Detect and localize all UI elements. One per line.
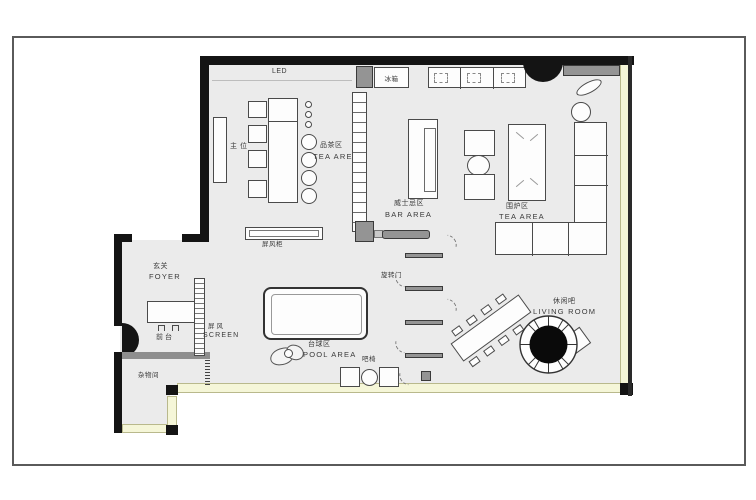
- dining-chair: [248, 101, 267, 118]
- tea-table-head: [268, 98, 298, 122]
- tea2-square-table: [464, 174, 495, 200]
- reception-chair: [172, 325, 179, 331]
- reception-label: 前台: [156, 334, 174, 343]
- tea2-label-en: TEA AREA: [499, 212, 545, 221]
- wall-left-upper: [200, 56, 209, 238]
- hatch-mark: [516, 180, 524, 187]
- sink-symbol: [501, 73, 515, 83]
- bar-counter: [408, 119, 438, 199]
- sofa-seam: [532, 223, 533, 256]
- dining-chair: [248, 150, 267, 168]
- counter-gray-strip: [563, 65, 620, 76]
- sculpture-decor-circle: [284, 349, 293, 358]
- revolving-door-panel: [405, 286, 443, 291]
- light-band-bottom: [177, 383, 621, 393]
- sink-symbol: [467, 73, 481, 83]
- hatch-mark: [516, 132, 524, 139]
- stool: [301, 134, 317, 150]
- bar-label-zh: 威士忌区: [394, 200, 424, 209]
- bar-counter-low: [382, 230, 430, 239]
- appliance-block: [356, 66, 373, 88]
- storage-label: 杂物间: [138, 372, 159, 380]
- bar-seat-square: [379, 367, 399, 387]
- bar-label-en: BAR AREA: [385, 210, 432, 219]
- bar-seat-round: [361, 369, 378, 386]
- storage-floor: [120, 355, 170, 428]
- screen-cabinet: [245, 227, 323, 240]
- small-stool: [305, 111, 312, 118]
- wall-foyer-stub-right: [182, 234, 209, 242]
- tea1-label-zh: 品茶区: [320, 142, 343, 151]
- counter-divider: [460, 68, 461, 89]
- host-bench: [213, 117, 227, 183]
- led-strip-line: [212, 80, 352, 81]
- bar-block: [355, 221, 374, 242]
- corner-block-left-bottom: [166, 425, 178, 435]
- dining-chair: [248, 125, 267, 143]
- foyer-label-zh: 玄关: [153, 263, 168, 272]
- sofa-seam: [575, 185, 608, 186]
- wine-rack: [352, 92, 367, 232]
- screen-cabinet-label: 屏风柜: [262, 241, 283, 249]
- sofa-seam: [575, 155, 608, 156]
- counter-divider: [493, 68, 494, 89]
- led-label: LED: [272, 68, 287, 77]
- dining-chair: [248, 180, 267, 198]
- sink-symbol: [434, 73, 448, 83]
- wall-top: [200, 56, 634, 65]
- tea2-round-table: [467, 155, 490, 176]
- pool-table-felt: [271, 294, 362, 335]
- living-label-zh: 休闲吧: [553, 298, 576, 307]
- revolving-door-panel: [405, 353, 443, 358]
- tea-table-long: [268, 121, 298, 203]
- sofa-seam: [568, 223, 569, 256]
- fridge: 冰箱: [374, 67, 409, 88]
- screen-label-en: SCREEN: [203, 332, 239, 339]
- tea2-square-table: [464, 130, 495, 156]
- main-seat-label: 主位: [230, 143, 250, 152]
- small-stool: [305, 101, 312, 108]
- bar-seat-square: [340, 367, 360, 387]
- light-band-storage: [122, 424, 167, 433]
- floor-plan-canvas: LED 冰箱 主位 品茶区 TEA AREA 威士忌区 BAR AREA: [0, 0, 756, 500]
- wall-foyer-left: [114, 234, 122, 326]
- reception-chair: [158, 325, 165, 331]
- light-band-left-vertical: [167, 396, 177, 426]
- pool-label-en: POOL AREA: [303, 350, 356, 359]
- wall-right: [628, 56, 632, 396]
- sofa-horizontal: [495, 222, 607, 255]
- side-table-round: [571, 102, 591, 122]
- hatch-mark: [530, 178, 538, 185]
- door-pivot-block: [421, 371, 431, 381]
- kitchen-counter: [428, 67, 526, 88]
- revolving-door-label: 旋转门: [381, 272, 402, 280]
- reception-desk: [147, 301, 197, 323]
- tea2-label-zh: 围炉区: [506, 203, 529, 212]
- stool: [301, 188, 317, 204]
- screen-cabinet-inner: [249, 230, 319, 237]
- hatch-mark: [530, 134, 538, 141]
- folding-screen: [194, 278, 205, 356]
- round-fire-pit: [518, 314, 579, 375]
- stool: [301, 170, 317, 186]
- revolving-door-panel: [405, 320, 443, 325]
- foyer-label-en: FOYER: [149, 272, 181, 281]
- sofa-vertical: [574, 122, 607, 223]
- coil-symbol: [205, 360, 210, 387]
- corner-block-left-top: [166, 385, 178, 395]
- pool-table: [263, 287, 368, 340]
- fridge-label: 冰箱: [385, 76, 399, 83]
- screen-label-zh: 屏风: [208, 323, 225, 331]
- bar-counter-inner: [424, 128, 436, 192]
- bar-chair-label: 吧椅: [362, 356, 376, 364]
- pool-label-zh: 台球区: [308, 341, 331, 350]
- small-stool: [305, 121, 312, 128]
- wall-left-lower: [114, 352, 122, 433]
- fire-table: [508, 124, 546, 201]
